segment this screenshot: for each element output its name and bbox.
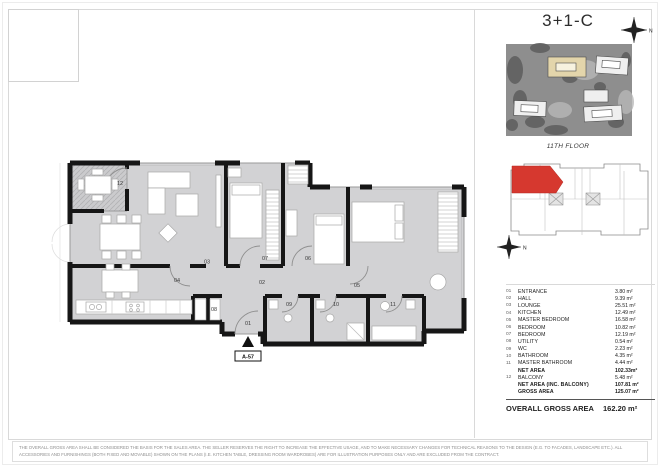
- legend-row: 04 KITCHEN 12.49 m²: [506, 310, 655, 317]
- compass-icon-keyplan: N: [497, 235, 527, 259]
- legend-row: 05 MASTER BEDROOM 16.58 m²: [506, 317, 655, 324]
- room-label-09: 09: [286, 302, 292, 308]
- room-label-05: 05: [354, 283, 360, 289]
- legend-row-label: UTILITY: [518, 339, 615, 345]
- north-label: N: [649, 29, 653, 35]
- room-label-08: 08: [211, 307, 217, 313]
- room-label-03: 03: [204, 260, 210, 266]
- legend-total-value: 162.20 m²: [603, 404, 655, 413]
- legend-row-number: 10: [506, 354, 518, 359]
- legend-row-number: 02: [506, 296, 518, 301]
- disclaimer-text: THE OVERALL GROSS AREA SHALL BE CONSIDER…: [19, 444, 641, 458]
- legend-row-label: NET AREA: [518, 368, 615, 374]
- legend-row: 10 BATHROOM 4.35 m²: [506, 353, 655, 360]
- legend-row-value: 4.35 m²: [615, 353, 655, 359]
- legend-row-value: 12.49 m²: [615, 310, 655, 316]
- room-label-04: 04: [174, 278, 180, 284]
- legend-row-value: 125.07 m²: [615, 389, 655, 395]
- legend-row-label: GROSS AREA: [518, 389, 615, 395]
- legend-row: NET AREA 102.33m²: [506, 367, 655, 374]
- legend-row: 11 MASTER BATHROOM 4.44 m²: [506, 360, 655, 367]
- legend-row-label: ENTRANCE: [518, 289, 615, 295]
- legend-row-label: NET AREA (INC. BALCONY): [518, 382, 615, 388]
- site-map: [506, 43, 634, 136]
- legend-row-number: 12: [506, 375, 518, 380]
- legend-row-value: 3.80 m²: [615, 289, 655, 295]
- legend-row-label: KITCHEN: [518, 310, 615, 316]
- legend-row-value: 0.54 m²: [615, 339, 655, 345]
- room-label-10: 10: [333, 302, 339, 308]
- legend-row: 02 HALL 9.39 m²: [506, 295, 655, 302]
- legend-row-value: 2.23 m²: [615, 346, 655, 352]
- legend-row-label: MASTER BATHROOM: [518, 360, 615, 366]
- entrance-marker: A-57: [235, 336, 261, 361]
- legend-row: 08 UTILITY 0.54 m²: [506, 338, 655, 345]
- legend-row-value: 102.33m²: [615, 368, 655, 374]
- legend-row-label: WC: [518, 346, 615, 352]
- legend-row-number: 03: [506, 303, 518, 308]
- legend-row: 07 BEDROOM 12.19 m²: [506, 331, 655, 338]
- legend-row: 03 LOUNGE 25.51 m²: [506, 302, 655, 309]
- legend-row-value: 16.58 m²: [615, 317, 655, 323]
- legend-total-label: OVERALL GROSS AREA: [506, 404, 603, 413]
- legend-row-number: 05: [506, 318, 518, 323]
- legend-row-value: 10.82 m²: [615, 325, 655, 331]
- key-plan: [511, 164, 648, 235]
- legend-row-label: LOUNGE: [518, 303, 615, 309]
- room-label-07: 07: [262, 256, 268, 262]
- entrance-code: A-57: [242, 355, 254, 361]
- legend-row-value: 5.48 m²: [615, 375, 655, 381]
- legend-row-value: 12.19 m²: [615, 332, 655, 338]
- room-label-02: 02: [259, 280, 265, 286]
- legend-row: 09 WC 2.23 m²: [506, 346, 655, 353]
- legend-row-number: 09: [506, 347, 518, 352]
- legend-row-label: BALCONY: [518, 375, 615, 381]
- legend-row-number: 04: [506, 311, 518, 316]
- legend-row-value: 107.81 m²: [615, 382, 655, 388]
- legend-total: OVERALL GROSS AREA 162.20 m²: [506, 399, 655, 413]
- legend-row-number: 07: [506, 332, 518, 337]
- room-label-12: 12: [117, 181, 123, 187]
- legend-row-number: 06: [506, 325, 518, 330]
- north-label: N: [523, 246, 527, 252]
- legend-row-label: HALL: [518, 296, 615, 302]
- drawing-canvas: 12 03 04 02 07 06 05 08 09 10 11 01 A-57: [0, 0, 660, 467]
- room-label-11: 11: [390, 302, 396, 308]
- legend-row-number: 08: [506, 339, 518, 344]
- compass-icon: N: [621, 17, 653, 43]
- room-label-06: 06: [305, 256, 311, 262]
- legend-row: GROSS AREA 125.07 m²: [506, 389, 655, 396]
- legend-row-number: 11: [506, 361, 518, 366]
- legend-row-number: 01: [506, 289, 518, 294]
- legend-row: 01 ENTRANCE 3.80 m²: [506, 288, 655, 295]
- legend-row-label: BATHROOM: [518, 353, 615, 359]
- legend-row-label: BEDROOM: [518, 325, 615, 331]
- entrance-arrow-icon: [242, 336, 254, 347]
- legend-row: 06 BEDROOM 10.82 m²: [506, 324, 655, 331]
- legend-row-label: MASTER BEDROOM: [518, 317, 615, 323]
- legend-row-label: BEDROOM: [518, 332, 615, 338]
- legend-row: NET AREA (INC. BALCONY) 107.81 m²: [506, 381, 655, 388]
- room-label-01: 01: [245, 321, 251, 327]
- legend-row-value: 9.39 m²: [615, 296, 655, 302]
- legend-row-value: 25.51 m²: [615, 303, 655, 309]
- area-legend: 01 ENTRANCE 3.80 m² 02 HALL 9.39 m² 03 L…: [506, 284, 655, 396]
- floor-plan: 12 03 04 02 07 06 05 08 09 10 11 01 A-57: [52, 163, 464, 361]
- legend-row-value: 4.44 m²: [615, 360, 655, 366]
- legend-row: 12 BALCONY 5.48 m²: [506, 374, 655, 381]
